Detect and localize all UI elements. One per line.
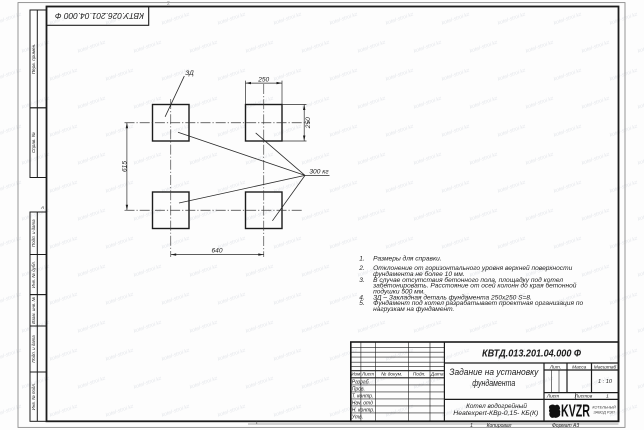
svg-text:615: 615 bbox=[121, 161, 128, 172]
svg-text:Разраб.: Разраб. bbox=[352, 379, 370, 385]
svg-text:Нач. отд: Нач. отд bbox=[352, 400, 373, 406]
svg-text:1.: 1. bbox=[359, 256, 365, 263]
svg-text:1: 1 bbox=[606, 394, 609, 400]
svg-text:Подп. и дата: Подп. и дата bbox=[31, 219, 36, 247]
svg-text:КОТЕЛЬНЫЙ: КОТЕЛЬНЫЙ bbox=[592, 405, 616, 409]
svg-text:ЗАВОД РЭП: ЗАВОД РЭП bbox=[593, 411, 614, 415]
svg-text:Утв.: Утв. bbox=[352, 414, 363, 420]
svg-text:Взам. инв. №: Взам. инв. № bbox=[31, 296, 36, 323]
svg-text:Копировал: Копировал bbox=[487, 423, 512, 429]
svg-text:250: 250 bbox=[257, 77, 269, 84]
svg-text:КВТД.013.201.04.000 Ф: КВТД.013.201.04.000 Ф bbox=[482, 349, 581, 360]
svg-text:Пров.: Пров. bbox=[352, 386, 365, 392]
svg-text:Справ. №: Справ. № bbox=[31, 132, 36, 153]
svg-text:Лист: Лист bbox=[546, 394, 559, 400]
svg-text:Формат А3: Формат А3 bbox=[552, 423, 580, 429]
svg-text:ЗД: ЗД bbox=[185, 70, 194, 77]
svg-text:Heatexpert-КВр-0,15- КБ(К): Heatexpert-КВр-0,15- КБ(К) bbox=[453, 410, 538, 417]
svg-text:Инв. № дубл.: Инв. № дубл. bbox=[31, 261, 36, 288]
svg-text:Т. контр.: Т. контр. bbox=[352, 393, 374, 399]
svg-text:Дата: Дата bbox=[430, 372, 444, 378]
svg-text:Подп.: Подп. bbox=[413, 372, 426, 378]
svg-text:1 : 10: 1 : 10 bbox=[598, 379, 613, 385]
svg-text:3.: 3. bbox=[359, 277, 365, 284]
svg-text:300 кг: 300 кг bbox=[309, 168, 329, 175]
svg-text:Подп. и дата: Подп. и дата bbox=[31, 335, 36, 363]
svg-text:А: А bbox=[40, 205, 44, 210]
svg-text:Перв. примен.: Перв. примен. bbox=[31, 44, 36, 75]
svg-text:Котел водогрейный: Котел водогрейный bbox=[466, 402, 527, 410]
svg-text:КВТУ.026.201.04.000 Ф: КВТУ.026.201.04.000 Ф bbox=[54, 11, 144, 20]
svg-text:№ докум.: № докум. bbox=[381, 372, 402, 378]
svg-text:Лит.: Лит. bbox=[549, 364, 561, 370]
svg-text:Листов: Листов bbox=[574, 394, 593, 400]
svg-text:Инв. № подл.: Инв. № подл. bbox=[31, 383, 36, 410]
svg-text:2.: 2. bbox=[358, 265, 365, 272]
svg-text:1: 1 bbox=[470, 423, 473, 429]
svg-text:KVZR: KVZR bbox=[561, 401, 590, 421]
svg-text:250: 250 bbox=[305, 117, 312, 129]
svg-text:Задание на установку: Задание на установку bbox=[449, 367, 538, 377]
svg-text:640: 640 bbox=[211, 248, 222, 255]
svg-text:Масса: Масса bbox=[572, 364, 587, 370]
svg-text:5.: 5. bbox=[359, 300, 365, 307]
svg-text:нагрузкам на фундамент.: нагрузкам на фундамент. bbox=[373, 305, 454, 313]
svg-text:фундамента: фундамента bbox=[472, 378, 515, 388]
svg-text:Лист: Лист bbox=[361, 372, 374, 378]
svg-text:Масштаб: Масштаб bbox=[594, 364, 617, 370]
svg-text:Н. контр.: Н. контр. bbox=[352, 407, 375, 413]
svg-text:Изм: Изм bbox=[351, 372, 361, 378]
svg-text:Размеры для справки.: Размеры для справки. bbox=[373, 255, 442, 263]
